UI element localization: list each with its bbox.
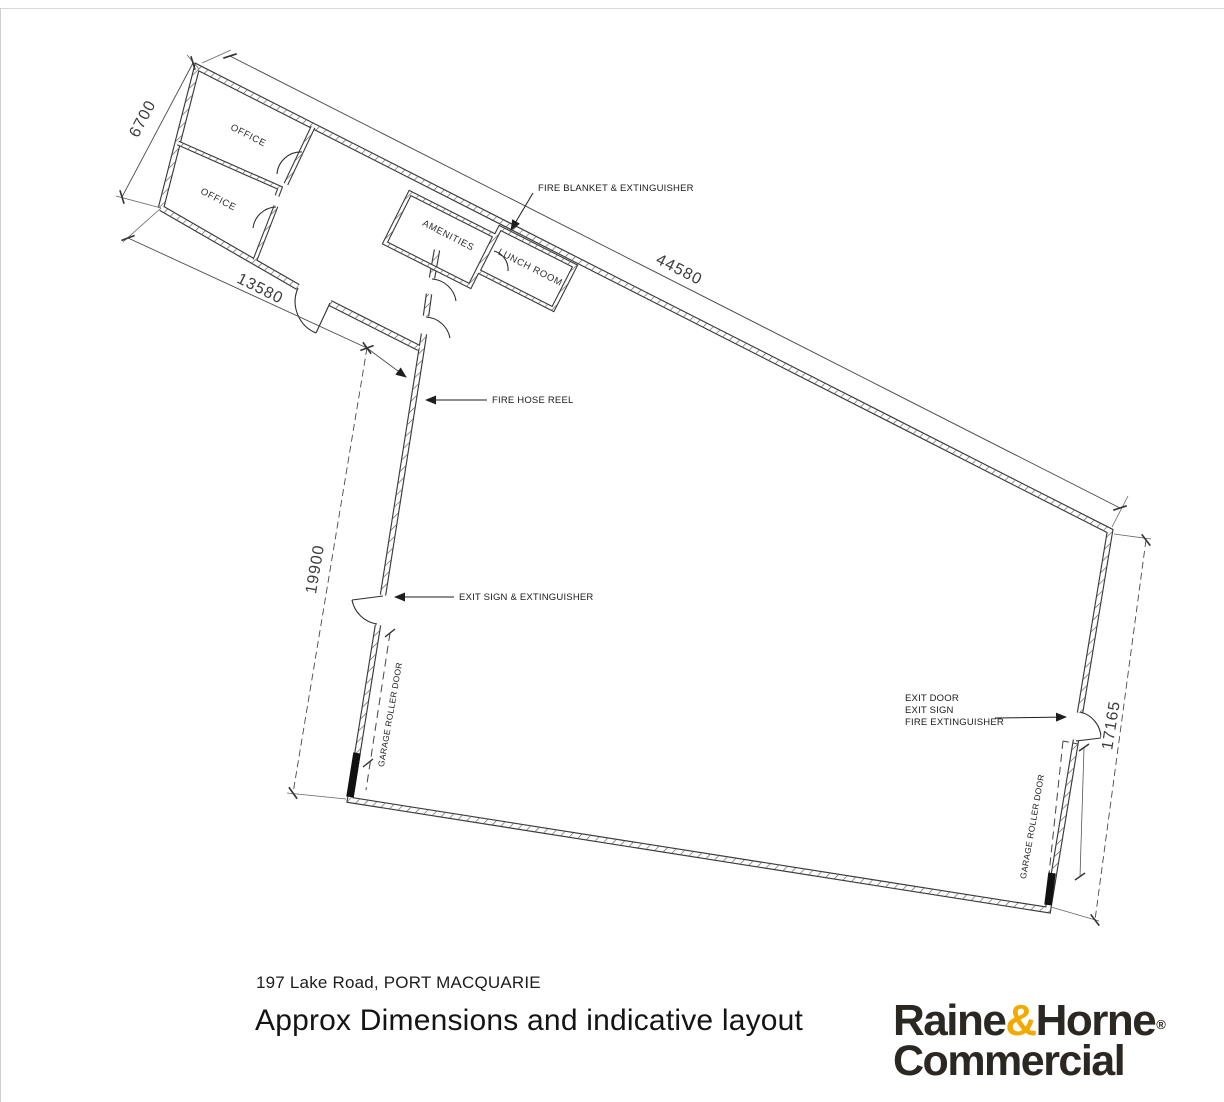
extension-lines — [116, 50, 1151, 921]
annotation-exit-door-line1: EXIT DOOR — [905, 693, 959, 704]
garage-left-door-panel — [350, 753, 357, 797]
dim-label-44580: 44580 — [653, 251, 705, 289]
left-exit-door-arc — [352, 596, 383, 624]
plan-caption: Approx Dimensions and indicative layout — [255, 1004, 803, 1038]
room-label-office-bottom: OFFICE — [199, 186, 238, 213]
right-exit-door-arc — [1076, 712, 1101, 741]
dim-line-19900 — [293, 348, 367, 793]
logo-commercial: Commercial — [893, 1040, 1166, 1083]
annotation-fire-blanket: FIRE BLANKET & EXTINGUISHER — [538, 183, 694, 194]
room-label-office-top: OFFICE — [229, 122, 268, 149]
logo-registered-mark: ® — [1156, 1017, 1166, 1032]
annotation-exit-door-line2: EXIT SIGN — [905, 705, 954, 716]
annotation-garage-door-right: GARAGE ROLLER DOOR — [1018, 773, 1046, 879]
garage-right-extent — [1080, 748, 1084, 877]
office-exterior-door-arc — [295, 288, 330, 333]
warehouse-top-door-arc-1 — [432, 279, 456, 301]
dim-leader-13580 — [367, 348, 406, 377]
floor-plan-drawing: 6700 13580 44580 19900 17165 OFFICE OFFI… — [0, 0, 1224, 1102]
garage-doors — [350, 629, 1089, 905]
dim-label-17165: 17165 — [1099, 700, 1124, 752]
property-address: 197 Lake Road, PORT MACQUARIE — [256, 973, 541, 993]
annotation-exit-door-line3: FIRE EXTINGUISHER — [905, 717, 1004, 728]
exit-door-leader — [995, 717, 1066, 718]
raine-horne-commercial-logo: Raine&Horne® Commercial — [893, 999, 1166, 1083]
dim-label-19900: 19900 — [303, 543, 328, 595]
annotation-fire-hose-reel: FIRE HOSE REEL — [492, 395, 573, 406]
fire-blanket-leader — [511, 193, 533, 230]
dim-line-44580 — [230, 56, 1120, 508]
dim-label-6700: 6700 — [126, 97, 159, 140]
warehouse-top-door-arc-2 — [426, 317, 450, 338]
garage-right-door-panel — [1048, 873, 1052, 905]
annotation-garage-door-left: GARAGE ROLLER DOOR — [376, 661, 404, 767]
door-arcs — [253, 152, 1101, 741]
floor-plan-page: { "plan": { "rooms": { "office_top": "OF… — [0, 0, 1224, 1102]
annotation-exit-sign-extinguisher: EXIT SIGN & EXTINGUISHER — [459, 592, 593, 603]
